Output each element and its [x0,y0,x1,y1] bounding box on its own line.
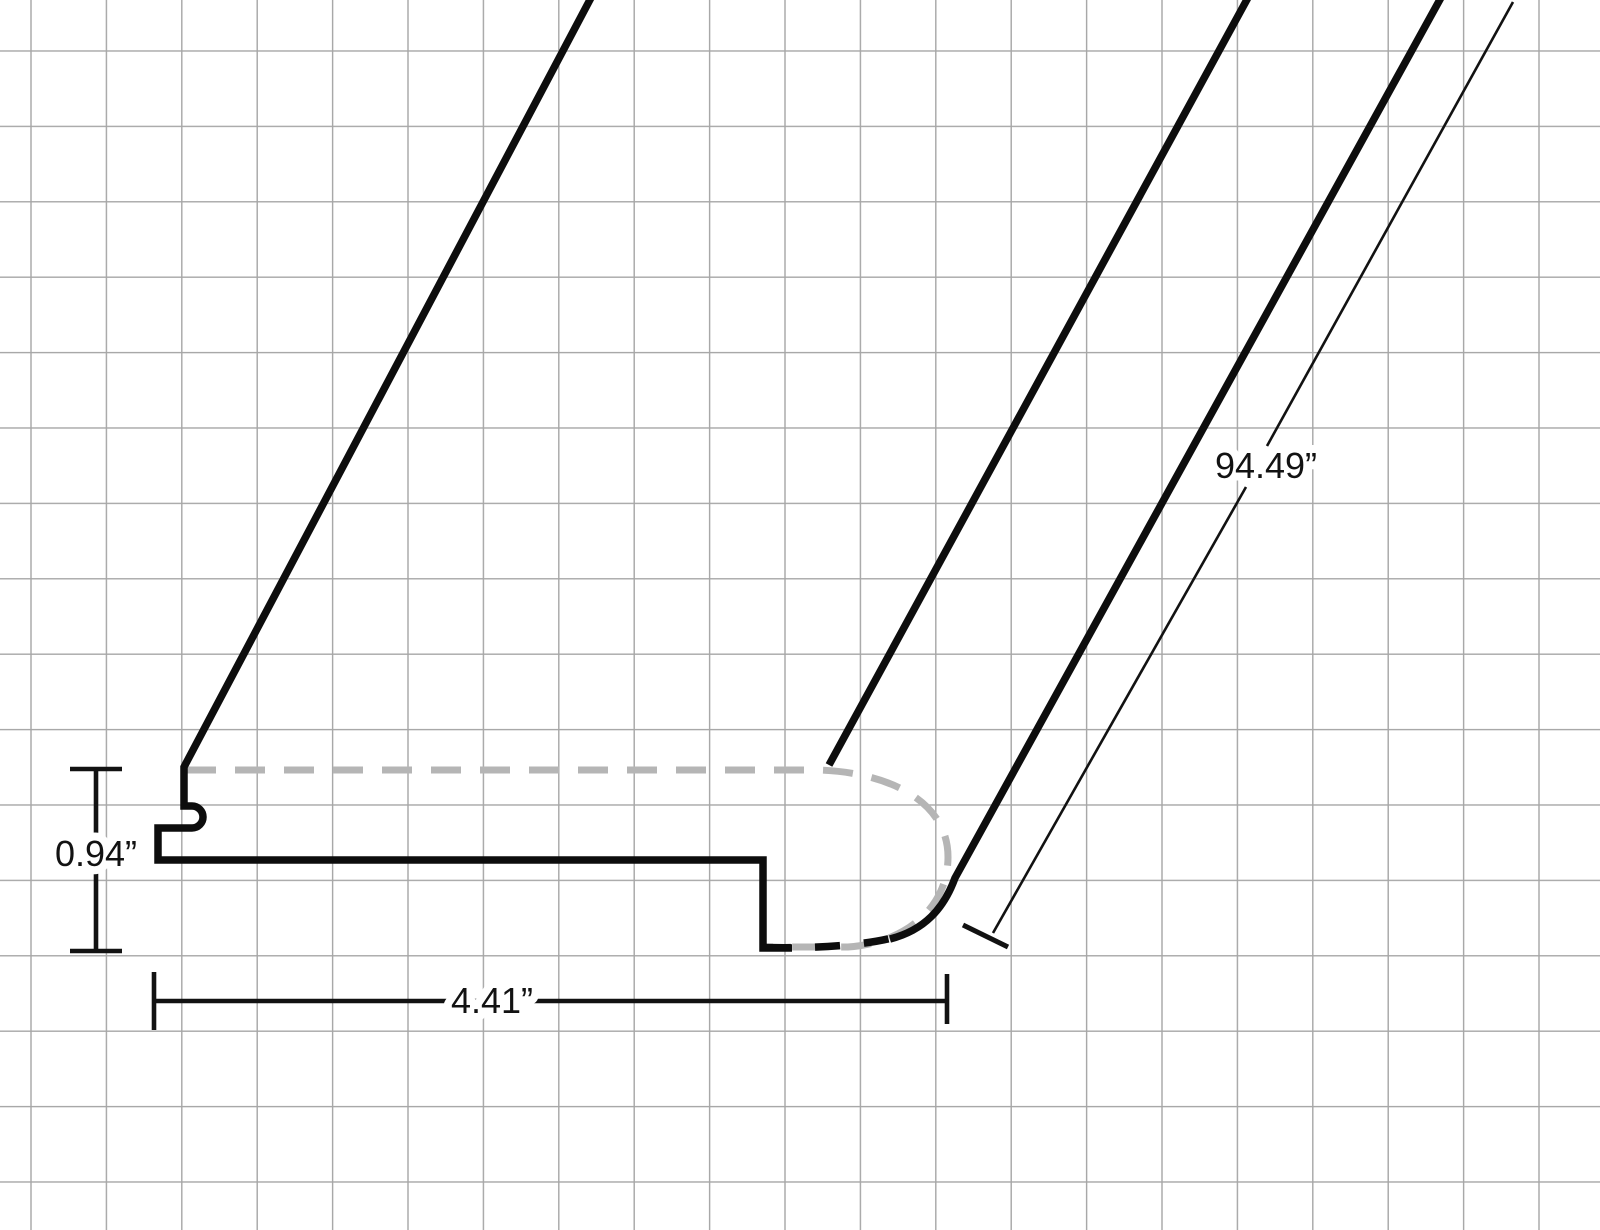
drawing-stage: 0.94” 4.41” 94.49” [0,0,1600,1230]
grid-paper [0,0,1600,1230]
width-label: 4.41” [451,980,533,1021]
length-label: 94.49” [1215,445,1317,486]
thickness-label: 0.94” [55,833,137,874]
profile-diagram-canvas: 0.94” 4.41” 94.49” [0,0,1600,1230]
